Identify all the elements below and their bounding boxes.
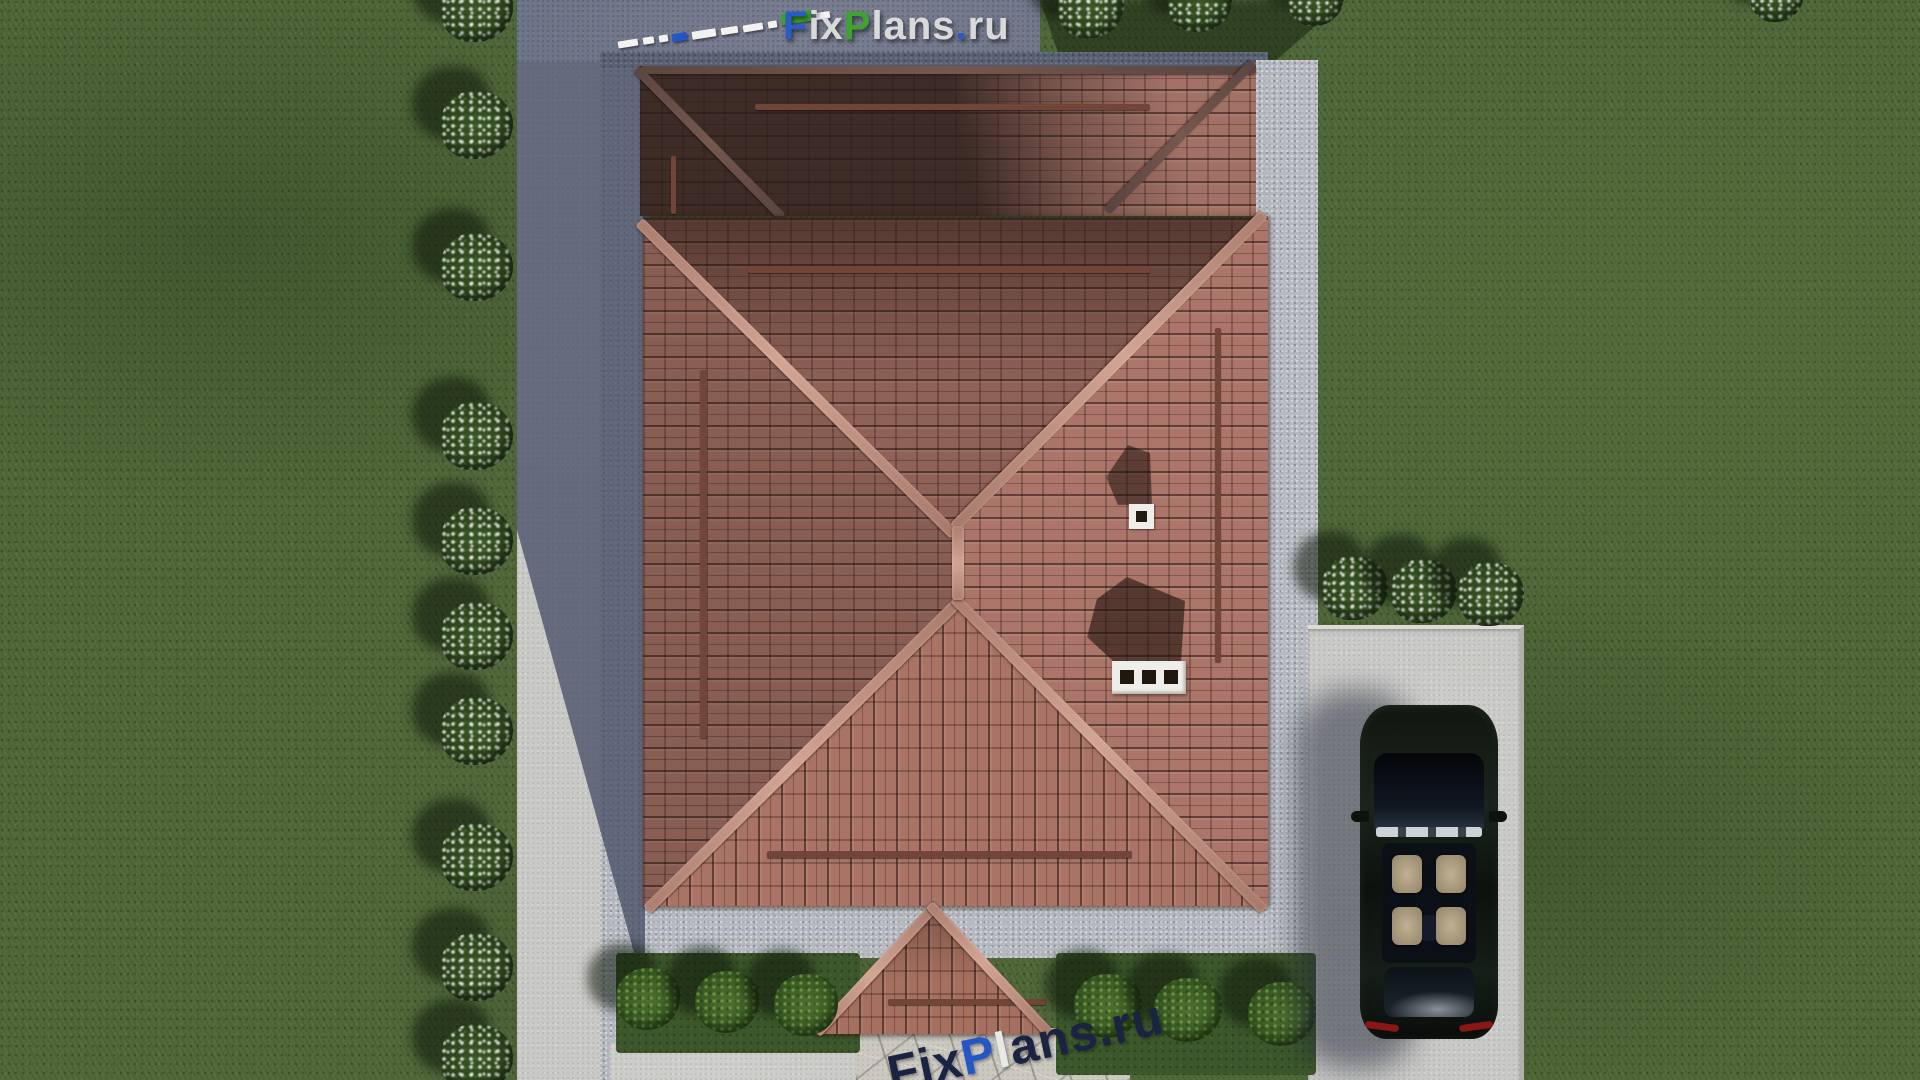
ridge-center	[952, 526, 964, 600]
flower-bush	[1288, 0, 1344, 26]
car-console	[1422, 915, 1436, 941]
ruler-dash	[659, 34, 669, 42]
car	[1358, 703, 1500, 1041]
watermark-logo: FixPlans.ru	[783, 4, 1010, 49]
garage-ridge-top	[640, 66, 1256, 74]
flower-bush	[441, 933, 513, 1001]
flower-bush	[441, 602, 513, 670]
watermark-segment: ix	[808, 4, 843, 48]
flower-bush	[441, 402, 513, 470]
car-rear-window	[1384, 967, 1474, 1017]
flower-bush	[441, 233, 513, 301]
flower-bush	[1750, 0, 1804, 22]
porch-roof-tiles	[813, 901, 1053, 1034]
car-seat	[1392, 855, 1422, 893]
watermark-segment: lans	[871, 4, 955, 48]
porch-roof	[813, 901, 1053, 1034]
green-bush	[774, 974, 838, 1036]
chimney-flue-3	[1164, 670, 1178, 684]
car-cabin-glass	[1382, 843, 1476, 963]
snow-guard-east	[1215, 328, 1221, 662]
roof-vent	[1129, 504, 1154, 529]
flower-bush	[1058, 0, 1124, 38]
snow-guard-north	[748, 266, 1150, 273]
flower-bush	[441, 1024, 513, 1080]
garage-roof	[640, 66, 1256, 216]
snow-guard-garage-vertical	[671, 156, 676, 214]
watermark-segment: .	[956, 4, 968, 48]
snow-guard-west	[700, 370, 707, 738]
flower-bush	[1168, 0, 1232, 32]
ruler-dash	[768, 20, 778, 28]
flower-bush	[441, 507, 513, 575]
snow-guard-south	[767, 851, 1132, 858]
flower-bush	[441, 823, 513, 891]
flower-bush	[1458, 562, 1524, 626]
flower-bush	[441, 0, 513, 42]
car-windshield	[1374, 753, 1484, 831]
roof-vent-opening	[1136, 511, 1147, 522]
chimney-flue-2	[1142, 670, 1156, 684]
car-seat	[1436, 855, 1466, 893]
chimney-flue-1	[1120, 670, 1134, 684]
aerial-render-scene: FixPlans.ru FixPlans.ru	[0, 0, 1920, 1080]
watermark-segment: ru	[968, 4, 1010, 48]
car-seat	[1392, 907, 1422, 945]
flower-bush	[441, 91, 513, 159]
car-seat	[1436, 907, 1466, 945]
car-mirror-right	[1489, 811, 1507, 822]
car-mirror-left	[1351, 811, 1369, 822]
driveway-left	[517, 62, 650, 1080]
watermark-segment: P	[844, 4, 872, 48]
garage-roof-shadow	[640, 66, 1256, 216]
main-roof	[643, 216, 1268, 906]
car-cowl-trim	[1376, 827, 1482, 837]
house-cast-shadow	[517, 62, 650, 1080]
snow-guard-garage	[755, 104, 1150, 110]
flower-bush	[441, 697, 513, 765]
watermark-segment: F	[783, 4, 808, 48]
chimney	[1112, 661, 1186, 694]
